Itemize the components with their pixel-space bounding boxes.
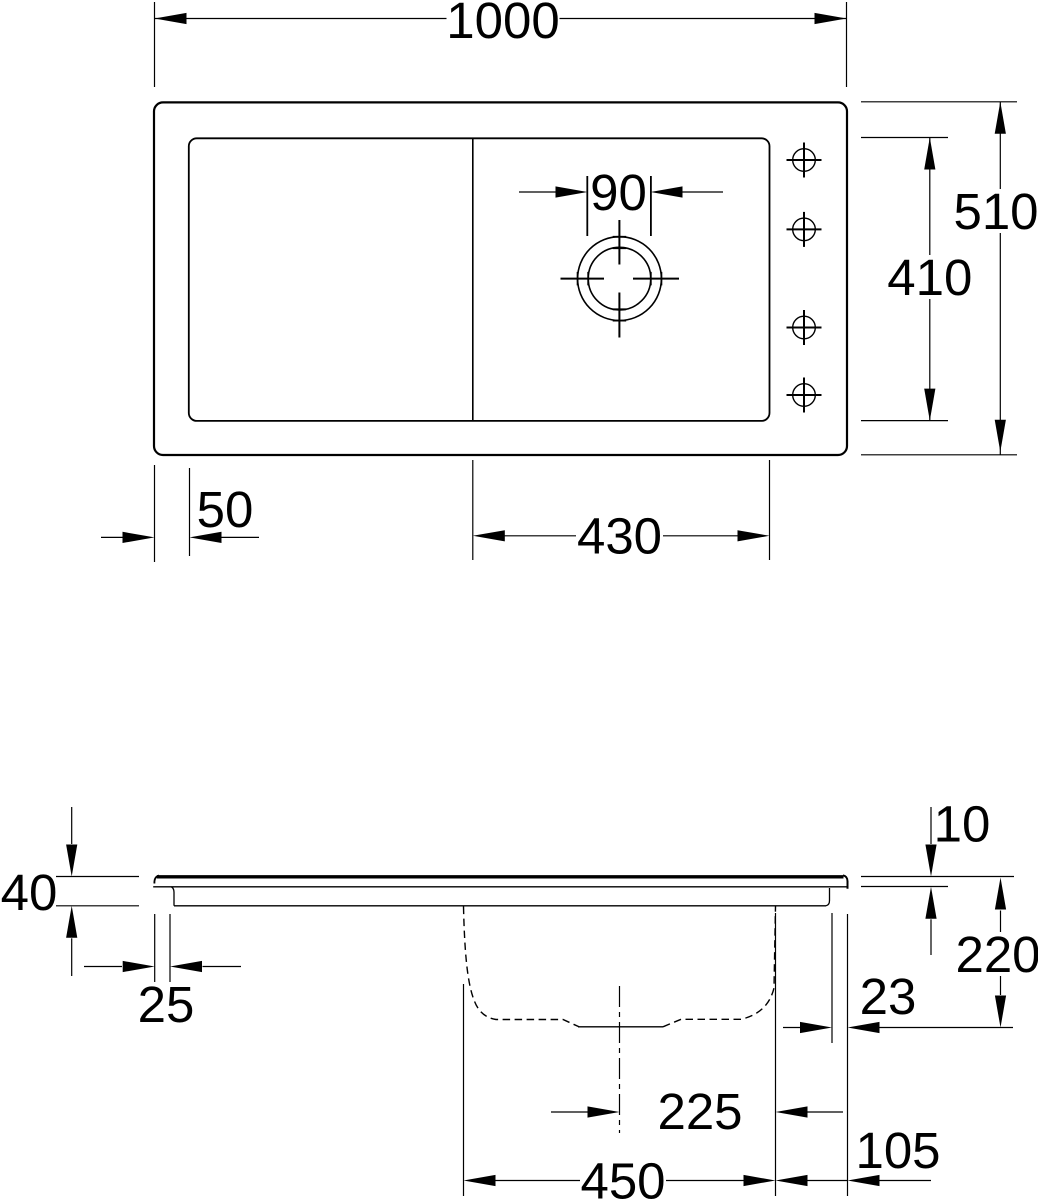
svg-text:510: 510 bbox=[953, 183, 1038, 240]
svg-text:10: 10 bbox=[934, 796, 991, 853]
svg-text:50: 50 bbox=[197, 481, 254, 538]
svg-text:1000: 1000 bbox=[446, 0, 559, 49]
svg-text:25: 25 bbox=[138, 976, 195, 1033]
svg-text:220: 220 bbox=[955, 926, 1038, 983]
svg-text:225: 225 bbox=[657, 1083, 742, 1140]
svg-text:40: 40 bbox=[1, 864, 58, 921]
svg-text:90: 90 bbox=[590, 164, 647, 221]
svg-text:450: 450 bbox=[580, 1153, 665, 1200]
svg-text:430: 430 bbox=[577, 508, 662, 565]
svg-text:105: 105 bbox=[855, 1122, 940, 1179]
svg-text:23: 23 bbox=[860, 968, 917, 1025]
svg-text:410: 410 bbox=[887, 249, 972, 306]
